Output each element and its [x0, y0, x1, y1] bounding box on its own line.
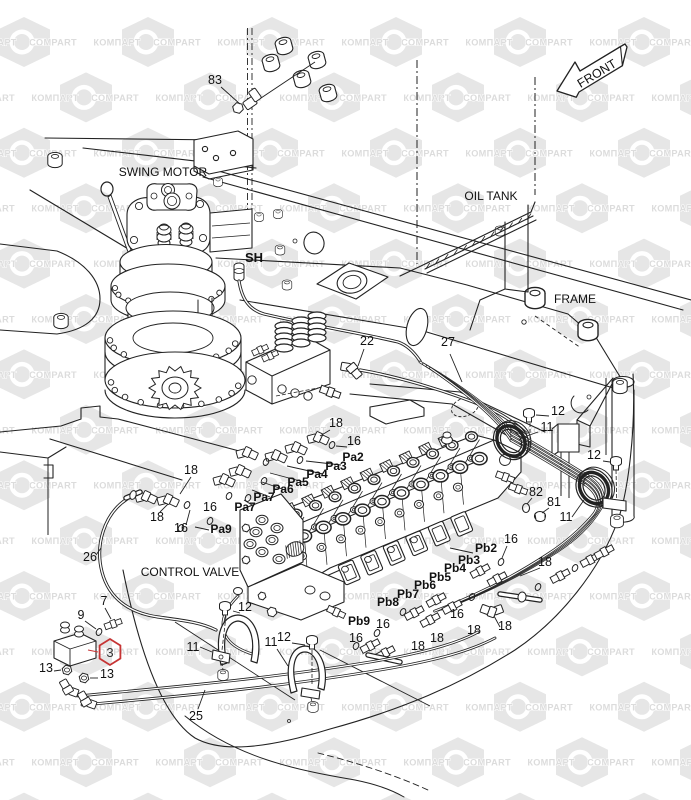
svg-text:82: 82	[529, 485, 543, 499]
svg-text:11: 11	[265, 635, 278, 649]
svg-text:Pa7: Pa7	[234, 500, 256, 514]
svg-text:18: 18	[430, 631, 444, 645]
svg-text:12: 12	[238, 600, 252, 614]
svg-text:7: 7	[101, 594, 108, 608]
svg-text:16: 16	[504, 532, 518, 546]
svg-text:22: 22	[360, 334, 374, 348]
svg-text:16: 16	[203, 500, 217, 514]
svg-text:SWING MOTOR: SWING MOTOR	[119, 165, 208, 179]
svg-text:16: 16	[174, 521, 188, 535]
svg-text:Pa7: Pa7	[253, 490, 275, 504]
svg-text:18: 18	[498, 619, 512, 633]
svg-text:16: 16	[450, 607, 464, 621]
svg-text:13: 13	[39, 661, 53, 675]
svg-text:Pb9: Pb9	[348, 614, 370, 628]
svg-text:25: 25	[189, 709, 203, 723]
svg-text:Pb8: Pb8	[377, 595, 399, 609]
svg-text:81: 81	[547, 495, 561, 509]
svg-text:FRAME: FRAME	[554, 292, 596, 306]
svg-text:SH: SH	[245, 250, 263, 265]
svg-text:18: 18	[538, 555, 552, 569]
svg-text:16: 16	[349, 631, 363, 645]
svg-text:12: 12	[551, 404, 565, 418]
svg-text:27: 27	[441, 335, 455, 349]
svg-text:11: 11	[187, 640, 200, 654]
svg-text:Pa4: Pa4	[306, 467, 328, 481]
svg-text:18: 18	[184, 463, 198, 477]
svg-text:OIL TANK: OIL TANK	[464, 189, 517, 203]
svg-text:18: 18	[329, 416, 343, 430]
svg-text:83: 83	[208, 73, 222, 87]
svg-text:11: 11	[541, 420, 554, 434]
svg-text:CONTROL VALVE: CONTROL VALVE	[141, 565, 239, 579]
svg-text:Pa6: Pa6	[272, 482, 294, 496]
svg-text:12: 12	[587, 448, 601, 462]
svg-text:Pa9: Pa9	[210, 522, 232, 536]
svg-text:13: 13	[100, 667, 114, 681]
svg-text:12: 12	[277, 630, 291, 644]
svg-text:Pa3: Pa3	[325, 459, 347, 473]
svg-text:18: 18	[150, 510, 164, 524]
svg-text:Pb7: Pb7	[397, 587, 419, 601]
svg-text:16: 16	[376, 617, 390, 631]
svg-text:11: 11	[560, 510, 573, 524]
svg-text:26: 26	[83, 550, 97, 564]
svg-text:16: 16	[347, 434, 361, 448]
svg-text:9: 9	[78, 608, 85, 622]
svg-text:3: 3	[106, 645, 113, 660]
